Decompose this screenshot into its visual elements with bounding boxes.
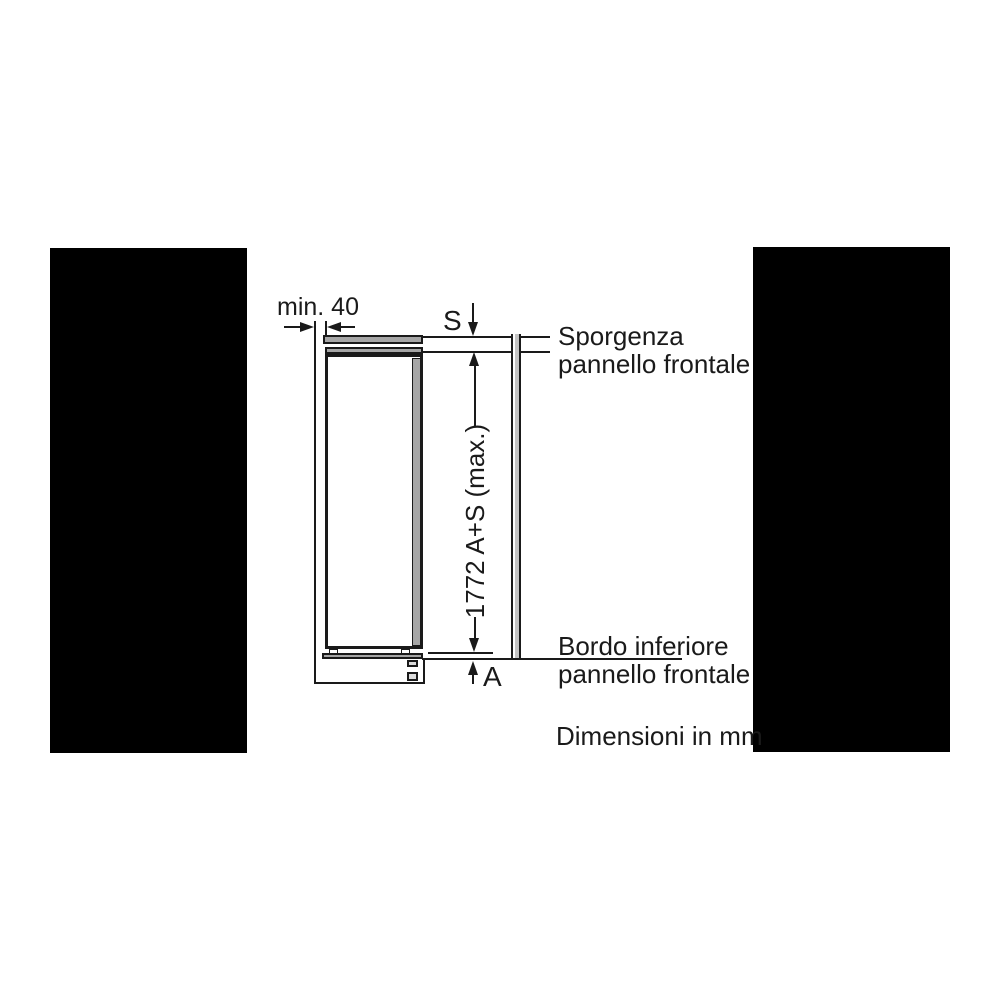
niche-bottom-right-edge: [423, 658, 425, 684]
appliance-body: [325, 354, 423, 649]
appliance-top-rail: [323, 335, 423, 344]
appliance-lower-bracket-upper: [407, 660, 418, 667]
appliance-bottom-rail: [322, 653, 423, 659]
overhang-s-label: S: [443, 306, 462, 335]
gap-a-label: A: [483, 662, 502, 691]
callout-top-line2: pannello frontale: [558, 351, 750, 378]
height-dim-bottom-tick: [428, 652, 493, 654]
appliance-door-strip: [412, 358, 421, 646]
niche-wall-line: [314, 321, 316, 684]
appliance-top-reference-line: [423, 351, 550, 353]
front-panel-bar: [511, 334, 521, 659]
units-footnote: Dimensioni in mm: [556, 723, 763, 750]
right-black-mask: [753, 247, 950, 752]
callout-bottom-line2: pannello frontale: [558, 661, 750, 688]
height-dimension-label: 1772 A+S (max.): [462, 421, 490, 621]
callout-top-line1: Sporgenza: [558, 323, 684, 350]
min-gap-arrow-right-line: [339, 326, 355, 328]
a-arrow-line: [472, 672, 474, 684]
niche-bottom-line: [314, 682, 425, 684]
appliance-lower-bracket-lower: [407, 672, 418, 681]
min-gap-dimension-label: min. 40: [277, 294, 359, 320]
appliance-second-rail: [325, 347, 423, 354]
panel-top-reference-line: [423, 336, 550, 338]
installation-diagram: min. 40 S 1772 A+S (max.) A Sporgenza pa…: [0, 0, 1000, 1000]
min-gap-arrow-right-head-icon: [300, 322, 314, 332]
callout-bottom-line1: Bordo inferiore: [558, 633, 729, 660]
s-arrow-down-head-icon: [468, 322, 478, 336]
height-dim-line-top: [474, 364, 476, 426]
height-arrow-down-head-icon: [469, 638, 479, 652]
left-black-mask: [50, 248, 247, 753]
